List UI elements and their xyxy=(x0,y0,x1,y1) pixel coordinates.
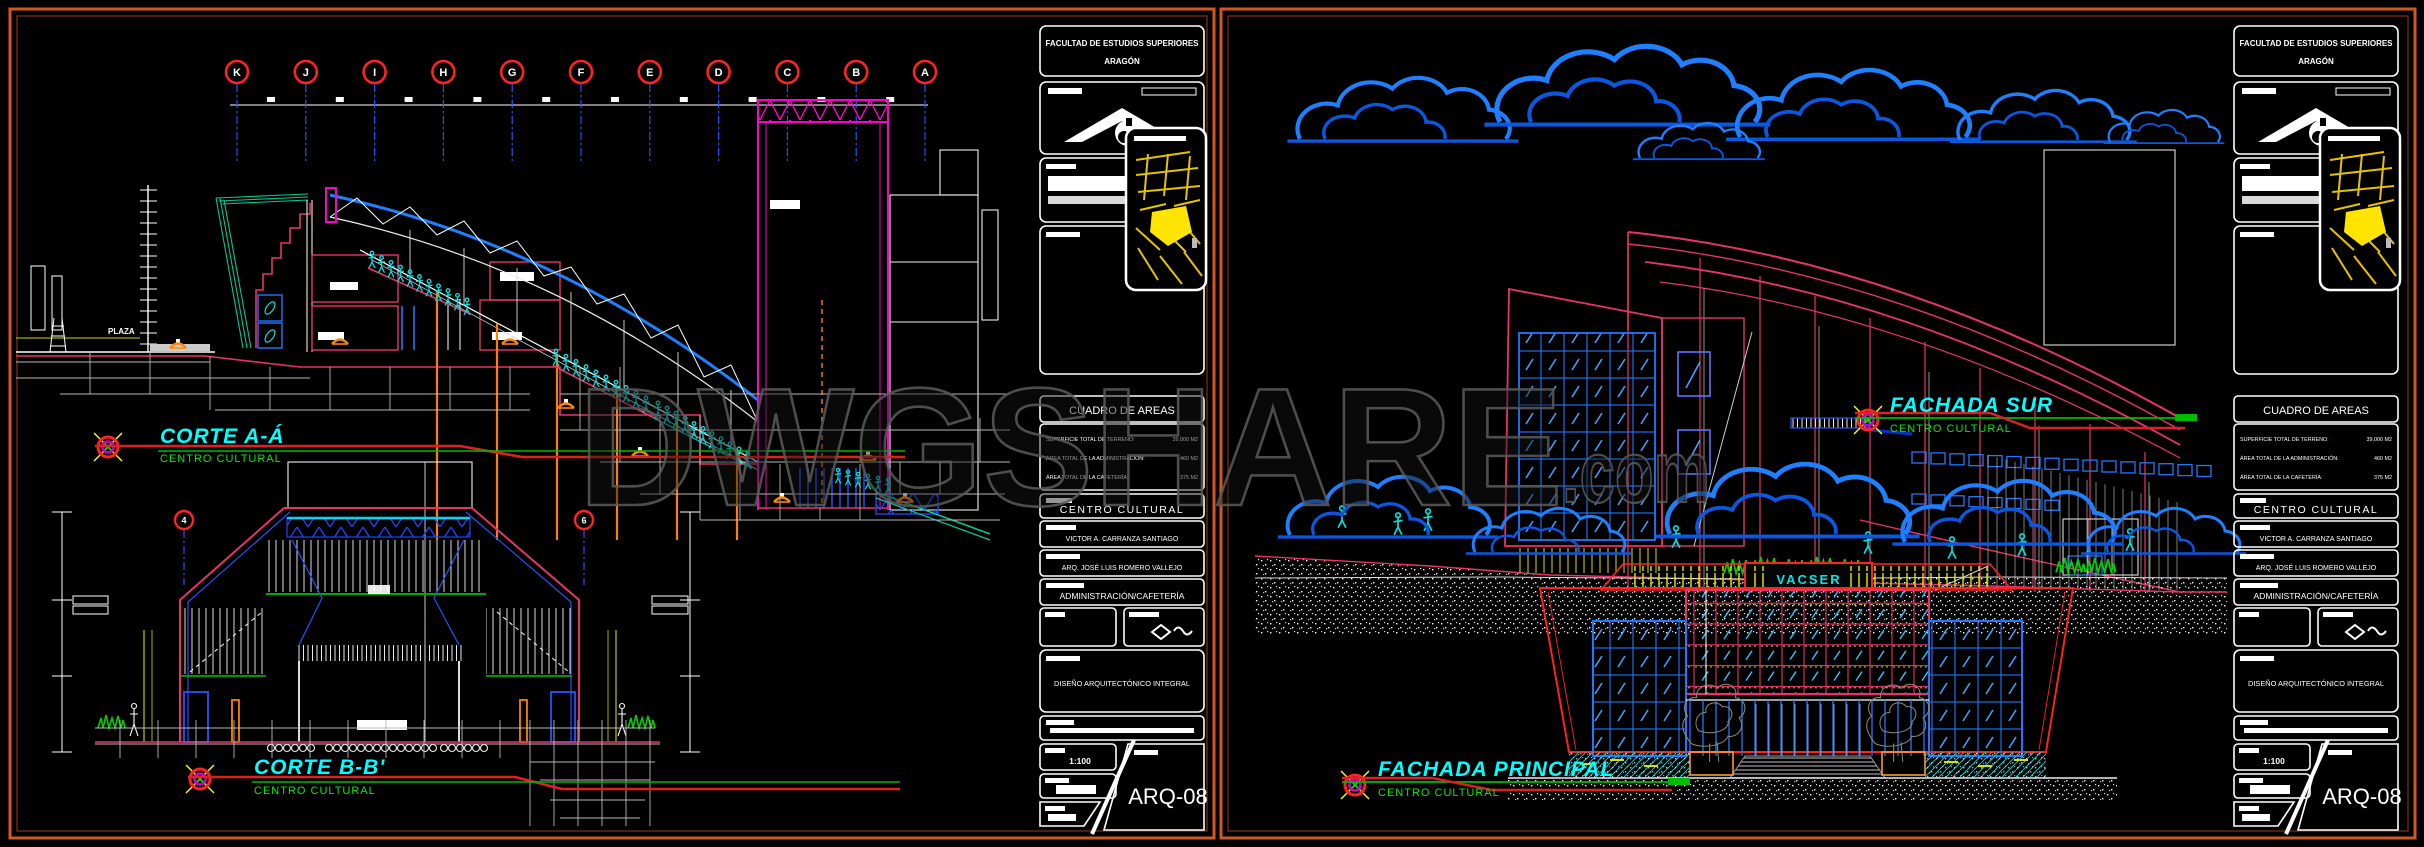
svg-text:CENTRO CULTURAL: CENTRO CULTURAL xyxy=(1378,787,1500,799)
cad-drawing-screenshot: FACULTAD DE ESTUDIOS SUPERIORES ARAGÓN C… xyxy=(0,0,2424,847)
svg-text:J: J xyxy=(303,67,309,79)
svg-text:FACHADA SUR: FACHADA SUR xyxy=(1890,394,2053,417)
svg-text:E: E xyxy=(646,67,653,79)
svg-text:CENTRO CULTURAL: CENTRO CULTURAL xyxy=(1890,423,2012,435)
svg-text:4: 4 xyxy=(181,516,186,526)
svg-text:F: F xyxy=(578,67,585,79)
svg-text:K: K xyxy=(233,67,241,79)
svg-text:CENTRO CULTURAL: CENTRO CULTURAL xyxy=(254,785,376,797)
svg-text:H: H xyxy=(439,67,447,79)
clouds-top xyxy=(1287,46,2224,159)
svg-text:I: I xyxy=(373,67,376,79)
svg-text:CENTRO CULTURAL: CENTRO CULTURAL xyxy=(160,453,282,465)
svg-text:FACHADA PRINCIPAL: FACHADA PRINCIPAL xyxy=(1378,758,1614,781)
svg-text:A: A xyxy=(921,67,929,79)
watermark: DWGSHARE .com xyxy=(578,353,1710,541)
svg-text:D: D xyxy=(715,67,723,79)
svg-text:C: C xyxy=(783,67,791,79)
svg-text:CORTE A-Á: CORTE A-Á xyxy=(160,425,285,448)
svg-text:DWGSHARE: DWGSHARE xyxy=(578,353,1563,541)
svg-text:B: B xyxy=(852,67,860,79)
svg-text:G: G xyxy=(508,67,517,79)
building-sign-text: VACSER xyxy=(1776,572,1841,587)
svg-text:.com: .com xyxy=(1562,422,1710,521)
cad-canvas: FACULTAD DE ESTUDIOS SUPERIORES ARAGÓN C… xyxy=(0,0,2424,847)
svg-text:CORTE B-B': CORTE B-B' xyxy=(254,756,385,779)
plaza-label: PLAZA xyxy=(108,327,135,336)
